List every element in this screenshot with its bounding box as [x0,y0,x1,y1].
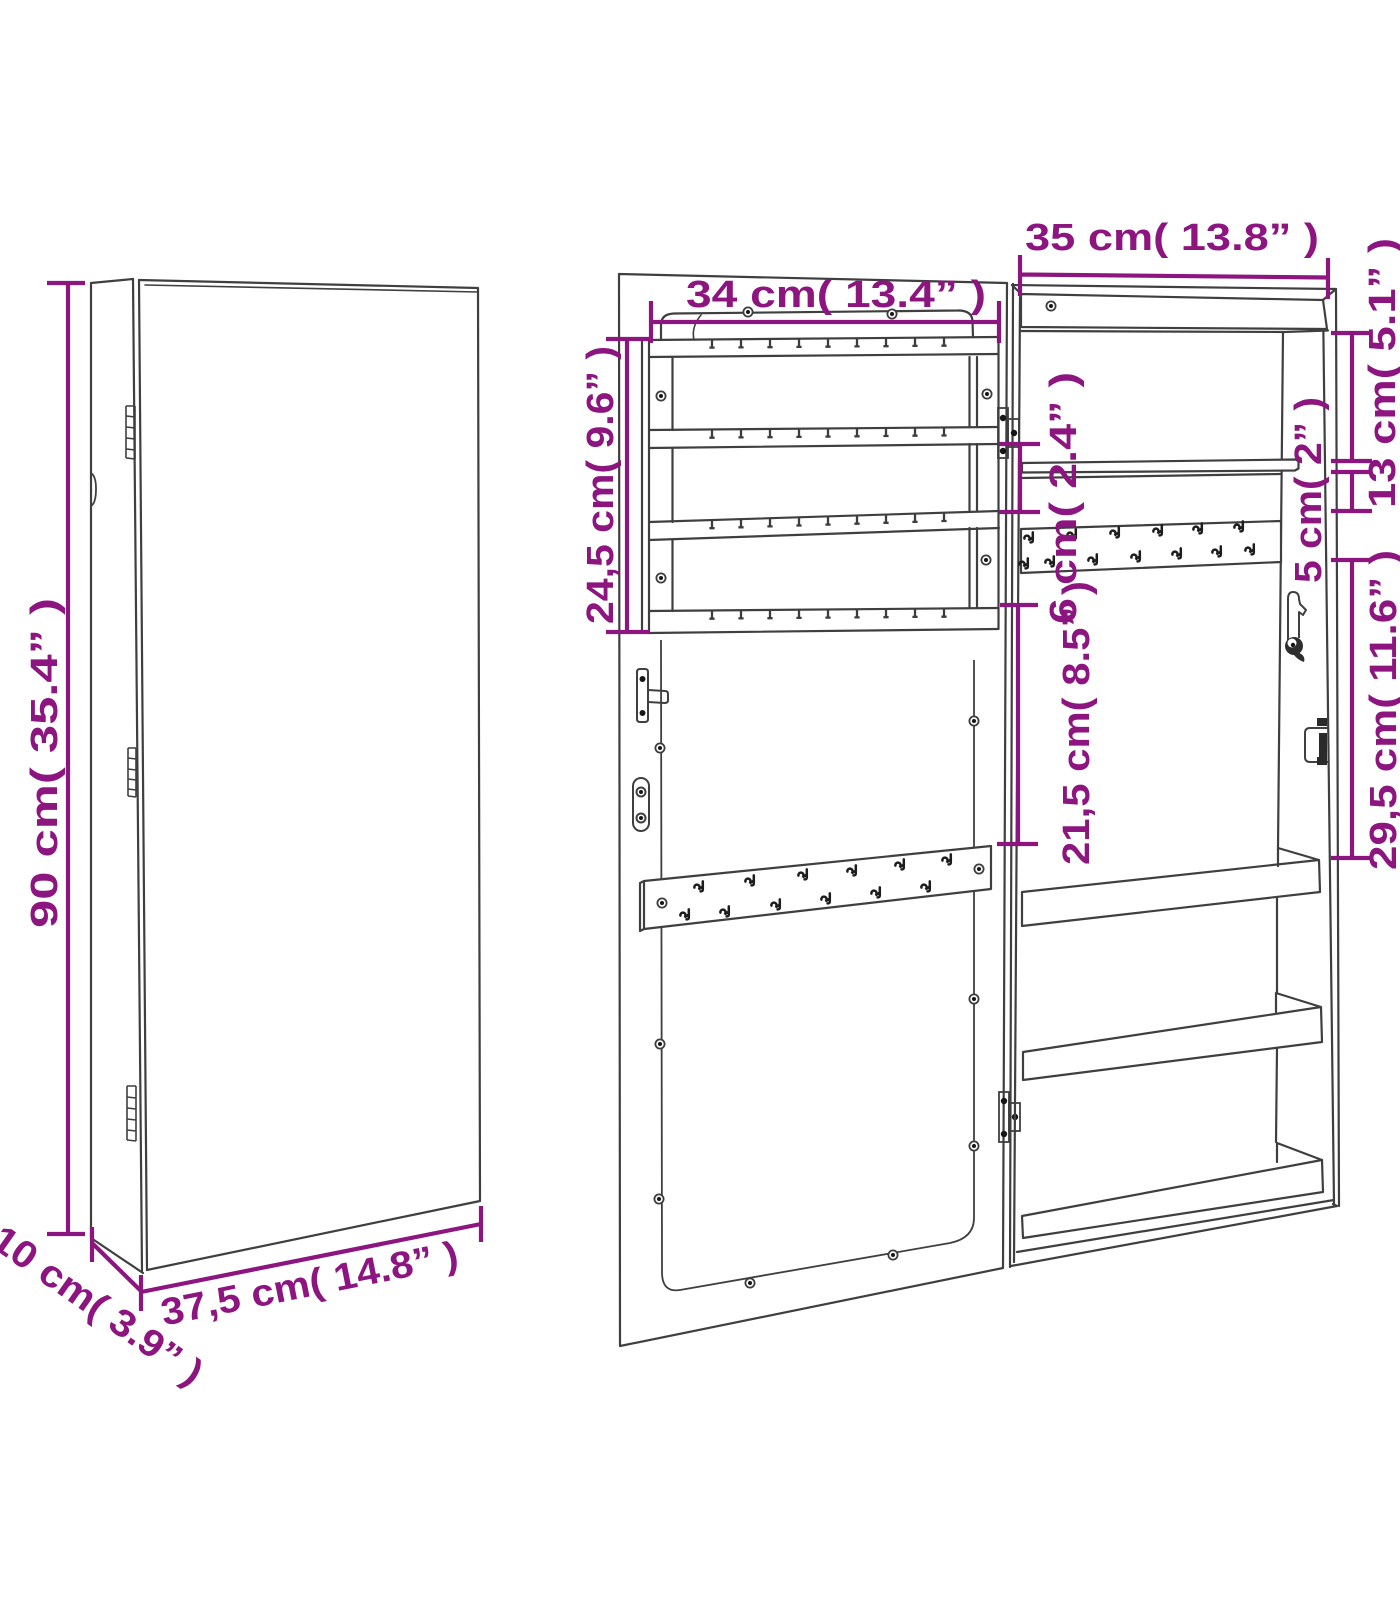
svg-text:35 cm( 13.8” ): 35 cm( 13.8” ) [1025,217,1319,259]
svg-text:24,5 cm( 9.6” ): 24,5 cm( 9.6” ) [580,346,622,624]
svg-text:34 cm( 13.4” ): 34 cm( 13.4” ) [686,274,986,316]
svg-text:90 cm( 35.4” ): 90 cm( 35.4” ) [24,598,66,928]
svg-text:21,5 cm( 8.5” ): 21,5 cm( 8.5” ) [1056,581,1098,865]
svg-text:5 cm( 2” ): 5 cm( 2” ) [1288,397,1330,583]
svg-text:13 cm( 5.1” ): 13 cm( 5.1” ) [1362,238,1400,508]
svg-text:29,5 cm( 11.6” ): 29,5 cm( 11.6” ) [1363,550,1400,870]
